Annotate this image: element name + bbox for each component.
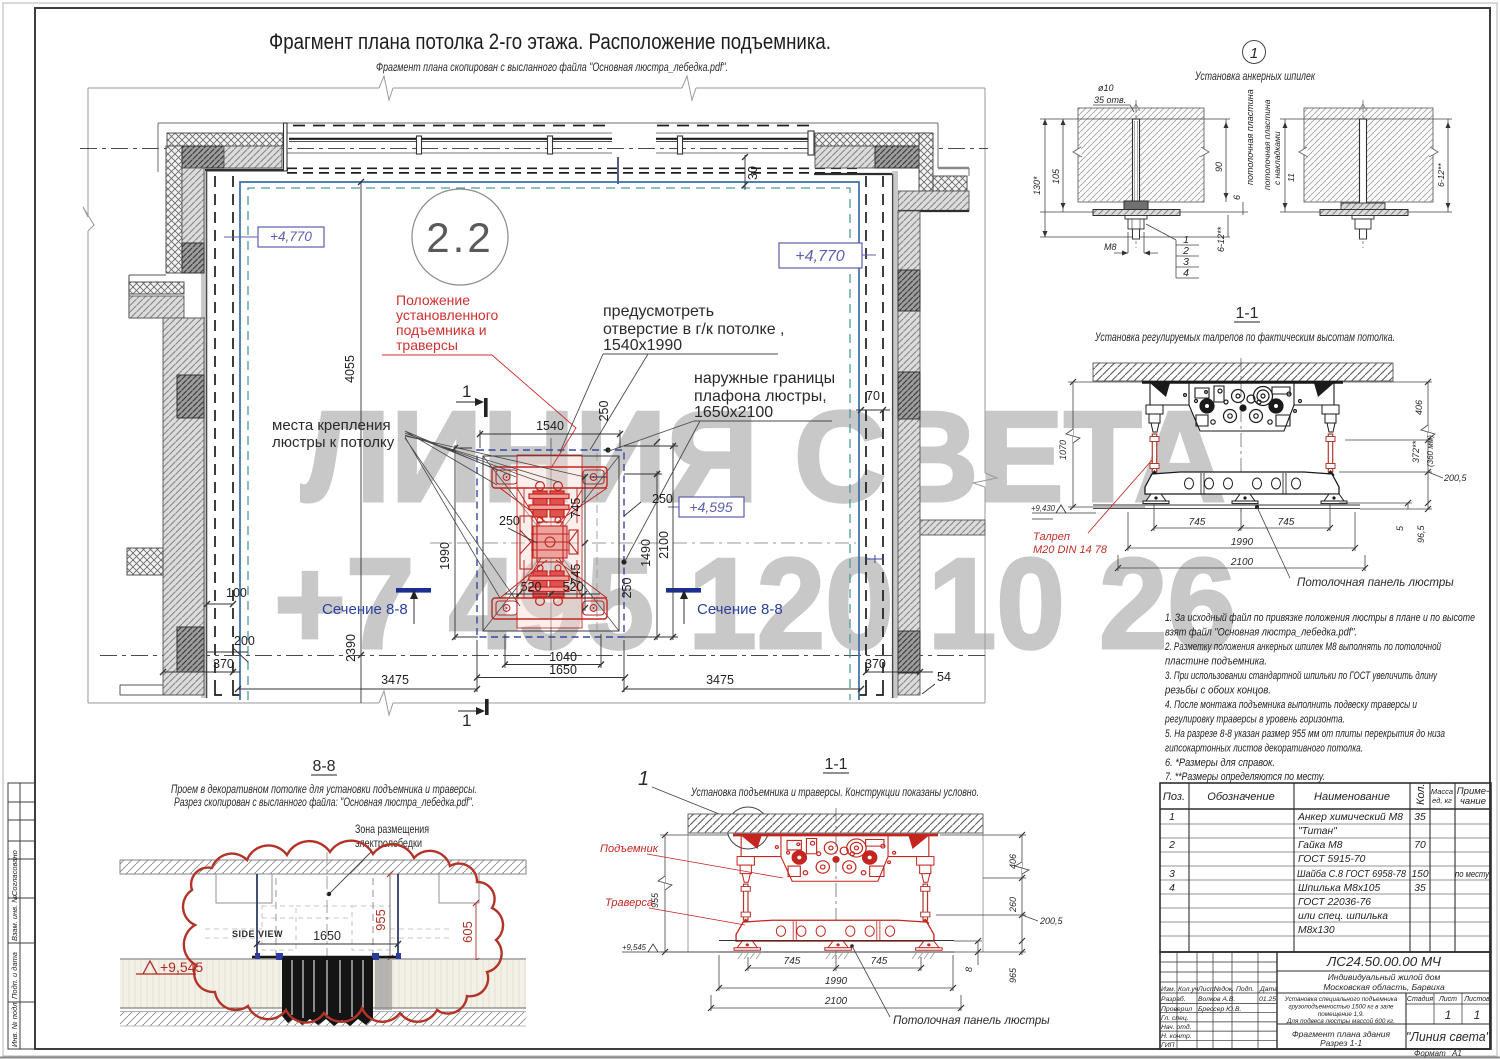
svg-text:Гайка М8: Гайка М8 — [1298, 840, 1343, 851]
svg-text:Разрез 1-1: Разрез 1-1 — [1320, 1038, 1362, 1048]
svg-text:А1: А1 — [1451, 1049, 1462, 1058]
svg-text:Потолочная панель люстры: Потолочная панель люстры — [893, 1015, 1050, 1027]
svg-text:потолочная пластина: потолочная пластина — [1245, 89, 1255, 185]
svg-text:Анкер химический М8: Анкер химический М8 — [1297, 812, 1403, 823]
svg-text:6. *Размеры для справок.: 6. *Размеры для справок. — [1165, 757, 1275, 769]
svg-text:11: 11 — [1286, 173, 1296, 182]
svg-text:35 отв.: 35 отв. — [1094, 95, 1126, 105]
svg-text:1990: 1990 — [438, 542, 452, 570]
svg-text:2. Разметку положения анкерны: 2. Разметку положения анкерных шпилек М8… — [1164, 641, 1441, 653]
svg-text:Листов: Листов — [1463, 996, 1490, 1003]
svg-text:2100: 2100 — [1230, 557, 1254, 568]
svg-text:8-8: 8-8 — [312, 758, 335, 775]
svg-text:Проверил: Проверил — [1161, 1006, 1192, 1013]
svg-text:Сечение 8-8: Сечение 8-8 — [322, 601, 408, 618]
svg-text:+9,545: +9,545 — [160, 959, 203, 975]
svg-text:7. **Размеры определяются по: 7. **Размеры определяются по месту. — [1165, 771, 1325, 783]
svg-text:Подъемник: Подъемник — [600, 843, 659, 855]
svg-text:с накладками: с накладками — [1272, 131, 1282, 185]
svg-text:Гл. спец.: Гл. спец. — [1161, 1015, 1189, 1022]
svg-text:130*: 130* — [1032, 176, 1042, 195]
svg-text:Фрагмент плана скопирован с вы: Фрагмент плана скопирован с высланного ф… — [376, 62, 728, 74]
svg-text:3. При использовании стандарт: 3. При использовании стандартной шпильки… — [1165, 670, 1438, 682]
svg-text:2100: 2100 — [824, 996, 848, 1007]
svg-text:200,5: 200,5 — [1039, 916, 1064, 926]
svg-text:965: 965 — [1008, 967, 1018, 983]
svg-text:+4,770: +4,770 — [795, 248, 844, 265]
svg-text:чание: чание — [1460, 796, 1486, 807]
svg-text:подъемника и: подъемника и — [396, 322, 487, 338]
svg-text:Зона размещения: Зона размещения — [355, 822, 429, 836]
svg-text:Траверса: Траверса — [605, 897, 653, 909]
svg-text:Установка специального подъемн: Установка специального подъемника — [1284, 995, 1398, 1003]
svg-text:резьбы с обоих концов.: резьбы с обоих концов. — [1164, 685, 1271, 697]
svg-text:Для подвеса люстры массой 600: Для подвеса люстры массой 600 кг. — [1286, 1017, 1395, 1025]
svg-text:90: 90 — [1214, 162, 1224, 172]
svg-text:4. После монтажа подъемника в: 4. После монтажа подъемника выполнить по… — [1165, 699, 1417, 711]
svg-text:200: 200 — [234, 634, 255, 648]
svg-text:1: 1 — [1474, 1008, 1481, 1022]
svg-text:3475: 3475 — [706, 673, 734, 687]
svg-text:1650: 1650 — [549, 663, 577, 677]
svg-text:2390: 2390 — [344, 634, 358, 662]
svg-text:гипсокартонных листов декорати: гипсокартонных листов декоративного пото… — [1165, 743, 1363, 755]
svg-text:"Линия света": "Линия света" — [1406, 1030, 1491, 1044]
svg-text:1650: 1650 — [313, 929, 341, 943]
svg-text:406: 406 — [1008, 854, 1018, 869]
svg-text:Стадия: Стадия — [1407, 995, 1433, 1003]
svg-text:Кол.: Кол. — [1415, 783, 1427, 805]
svg-text:SIDE VIEW: SIDE VIEW — [232, 929, 283, 939]
svg-text:6: 6 — [1232, 195, 1242, 200]
svg-text:250: 250 — [499, 514, 520, 528]
svg-text:520: 520 — [563, 580, 584, 594]
svg-text:Наименование: Наименование — [1314, 791, 1390, 803]
svg-text:200,5: 200,5 — [1443, 473, 1468, 483]
svg-text:Обозначение: Обозначение — [1207, 791, 1274, 803]
svg-text:4: 4 — [1183, 267, 1189, 279]
svg-text:70: 70 — [866, 389, 880, 403]
svg-text:372**: 372** — [1411, 440, 1421, 463]
svg-text:"Титан": "Титан" — [1298, 826, 1338, 837]
svg-text:54: 54 — [937, 670, 951, 684]
svg-text:1-1: 1-1 — [824, 756, 847, 773]
svg-text:1: 1 — [1250, 45, 1258, 62]
svg-text:Кол.уч: Кол.уч — [1178, 986, 1199, 993]
svg-text:4055: 4055 — [343, 355, 357, 383]
svg-text:+9,430: +9,430 — [1031, 503, 1055, 513]
svg-text:Разрез скопирован с высланного: Разрез скопирован с высланного файла: "О… — [174, 797, 474, 809]
svg-text:250: 250 — [620, 578, 634, 599]
svg-text:Шайба С.8 ГОСТ 6958-78: Шайба С.8 ГОСТ 6958-78 — [1297, 868, 1406, 880]
svg-text:105: 105 — [1051, 168, 1061, 184]
svg-text:Нач. отд.: Нач. отд. — [1161, 1023, 1192, 1031]
svg-text:1. За исходный файл по привяз: 1. За исходный файл по привязке положени… — [1165, 612, 1475, 624]
svg-text:250: 250 — [597, 401, 611, 422]
svg-text:люстры к потолку: люстры к потолку — [272, 434, 395, 451]
svg-text:745: 745 — [1189, 517, 1206, 528]
svg-text:250: 250 — [652, 492, 673, 506]
svg-text:1540: 1540 — [536, 419, 564, 433]
svg-text:М8: М8 — [1104, 242, 1117, 252]
svg-text:100: 100 — [226, 586, 247, 600]
svg-text:Изм.: Изм. — [1161, 986, 1176, 993]
svg-text:Формат: Формат — [1414, 1049, 1446, 1058]
svg-text:Фрагмент плана потолка 2-го эт: Фрагмент плана потолка 2-го этажа. Распо… — [269, 29, 831, 54]
svg-text:Талреп: Талреп — [1033, 531, 1070, 543]
svg-text:Волков А.В.: Волков А.В. — [1198, 996, 1235, 1003]
svg-text:6-12**: 6-12** — [1436, 163, 1446, 187]
svg-text:370: 370 — [865, 657, 886, 671]
svg-text:Масса: Масса — [1431, 787, 1453, 796]
svg-text:3: 3 — [1169, 869, 1175, 880]
svg-text:Лист: Лист — [1438, 996, 1457, 1003]
svg-text:или спец. шпилька: или спец. шпилька — [1298, 911, 1388, 922]
svg-text:406: 406 — [1414, 400, 1424, 415]
svg-text:Шпилька М8х105: Шпилька М8х105 — [1298, 883, 1380, 894]
svg-text:01.25: 01.25 — [1259, 996, 1276, 1003]
svg-text:ø10: ø10 — [1098, 83, 1114, 93]
svg-text:+4,595: +4,595 — [689, 499, 732, 515]
svg-text:1990: 1990 — [1231, 537, 1254, 548]
svg-text:5. На разрезе 8-8 указан разм: 5. На разрезе 8-8 указан размер 955 мм о… — [1165, 728, 1445, 740]
svg-text:(360 мм): (360 мм) — [1426, 435, 1435, 467]
svg-text:Московская область, Барвиха: Московская область, Барвиха — [1323, 982, 1445, 992]
svg-text:потолочная пластина: потолочная пластина — [1262, 99, 1272, 190]
svg-text:Подп.: Подп. — [1236, 985, 1254, 993]
svg-text:Взам. инв. №: Взам. инв. № — [10, 895, 19, 941]
svg-text:плафона люстры,: плафона люстры, — [694, 388, 827, 405]
svg-text:электролебедки: электролебедки — [355, 836, 422, 850]
svg-text:745: 745 — [871, 956, 888, 967]
svg-text:Проем в декоративном потолке д: Проем в декоративном потолке для установ… — [171, 784, 477, 796]
svg-text:1070: 1070 — [1058, 440, 1068, 460]
svg-text:Сечение 8-8: Сечение 8-8 — [697, 601, 783, 618]
svg-text:отверстие в г/к потолке ,: отверстие в г/к потолке , — [603, 321, 784, 338]
svg-text:1: 1 — [462, 382, 471, 401]
svg-text:№док.: №док. — [1214, 985, 1234, 993]
svg-text:М8х130: М8х130 — [1298, 925, 1335, 936]
svg-text:1490: 1490 — [639, 539, 653, 567]
svg-text:1: 1 — [1169, 812, 1175, 823]
svg-text:8: 8 — [964, 967, 974, 972]
svg-text:745: 745 — [569, 498, 583, 519]
svg-text:2: 2 — [1168, 840, 1175, 851]
svg-text:35: 35 — [1414, 883, 1426, 894]
svg-text:Установка анкерных шпилек: Установка анкерных шпилек — [1194, 71, 1315, 83]
svg-text:Дата: Дата — [1259, 986, 1278, 993]
svg-text:745: 745 — [1278, 517, 1295, 528]
svg-text:30: 30 — [746, 166, 760, 180]
svg-text:Н. контр.: Н. контр. — [1161, 1033, 1192, 1040]
svg-text:+4,770: +4,770 — [270, 229, 312, 244]
svg-text:Потолочная панель люстры: Потолочная панель люстры — [1297, 577, 1454, 589]
svg-text:260: 260 — [1008, 897, 1018, 913]
svg-text:наружные границы: наружные границы — [694, 370, 835, 387]
svg-text:Инв. № подл.: Инв. № подл. — [10, 1000, 19, 1047]
svg-text:предусмотреть: предусмотреть — [603, 303, 714, 320]
svg-text:Лист: Лист — [1197, 986, 1216, 993]
svg-text:1040: 1040 — [549, 650, 577, 664]
svg-text:места крепления: места крепления — [272, 417, 391, 434]
svg-text:помещение 1,9.: помещение 1,9. — [1318, 1011, 1364, 1018]
svg-text:370: 370 — [213, 657, 234, 671]
svg-text:+9,545: +9,545 — [622, 942, 646, 952]
svg-text:Поз.: Поз. — [1163, 791, 1185, 803]
svg-text:1: 1 — [1445, 1008, 1452, 1022]
svg-text:пластине подъемника.: пластине подъемника. — [1165, 656, 1267, 668]
svg-text:6-12**: 6-12** — [1216, 226, 1226, 252]
svg-text:Установка подъемника и траверс: Установка подъемника и траверсы. Констру… — [690, 787, 979, 799]
svg-text:ГОСТ 5915-70: ГОСТ 5915-70 — [1298, 854, 1366, 865]
svg-text:Индивидуальный жилой дом: Индивидуальный жилой дом — [1328, 972, 1441, 982]
svg-text:ГОСТ 22036-76: ГОСТ 22036-76 — [1298, 897, 1371, 908]
svg-text:ГИП: ГИП — [1161, 1042, 1175, 1049]
svg-text:Положение: Положение — [396, 292, 470, 308]
svg-text:регулировку траверсы в уровень: регулировку траверсы в уровень горизонта… — [1164, 714, 1345, 726]
svg-text:1990: 1990 — [825, 976, 848, 987]
svg-text:Подп. и дата: Подп. и дата — [10, 952, 19, 999]
svg-text:1: 1 — [638, 768, 649, 790]
svg-text:745: 745 — [784, 956, 801, 967]
svg-text:Разраб.: Разраб. — [1161, 995, 1186, 1003]
svg-text:35: 35 — [1414, 812, 1426, 823]
svg-text:1540х1990: 1540х1990 — [603, 337, 682, 354]
svg-text:2.2: 2.2 — [426, 214, 493, 261]
svg-text:Брессер Ю.В.: Брессер Ю.В. — [1198, 1006, 1242, 1013]
svg-text:взят файл "Основная люстра_леб: взят файл "Основная люстра_лебедка.pdf". — [1165, 627, 1357, 639]
svg-text:ед, кг: ед, кг — [1432, 796, 1452, 805]
svg-text:траверсы: траверсы — [396, 337, 458, 353]
svg-text:4: 4 — [1169, 883, 1175, 894]
svg-text:1-1: 1-1 — [1235, 305, 1258, 322]
svg-text:грузоподъемностью 1500 кг в за: грузоподъемностью 1500 кг в зале — [1288, 1003, 1394, 1011]
svg-text:1650х2100: 1650х2100 — [694, 404, 773, 421]
svg-text:2100: 2100 — [657, 531, 671, 559]
svg-text:по месту: по месту — [1455, 869, 1490, 879]
svg-text:70: 70 — [1414, 840, 1426, 851]
svg-text:Установка регулируемых талрепо: Установка регулируемых талрепов по факти… — [1094, 332, 1395, 344]
svg-text:520: 520 — [521, 580, 542, 594]
svg-text:3475: 3475 — [381, 673, 409, 687]
svg-text:ЛС24.50.00.00 МЧ: ЛС24.50.00.00 МЧ — [1326, 954, 1441, 969]
svg-text:96,5: 96,5 — [1416, 524, 1426, 543]
svg-text:1: 1 — [462, 711, 471, 730]
svg-text:150: 150 — [1411, 869, 1428, 880]
svg-text:955: 955 — [373, 909, 388, 931]
svg-text:установленного: установленного — [396, 307, 499, 323]
svg-text:М20 DIN 14 78: М20 DIN 14 78 — [1033, 544, 1108, 556]
svg-text:605: 605 — [460, 921, 475, 943]
svg-text:Согласовано: Согласовано — [10, 850, 19, 896]
